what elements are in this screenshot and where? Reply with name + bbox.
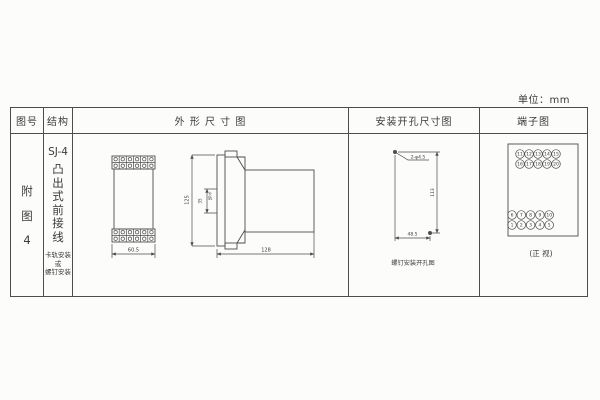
mounting-caption: 螺钉安装开孔图 (391, 259, 434, 267)
structure-type-char: 出 (52, 177, 64, 191)
terminal-number: 15 (553, 152, 559, 158)
mounting-note-line: 或 (45, 260, 71, 269)
terminal-number: 7 (520, 213, 523, 219)
structure-type-char: 接 (52, 217, 64, 231)
height-dim: 125 (185, 195, 191, 205)
rail-width-dim: 35 (198, 198, 203, 204)
terminal-number: 18 (535, 162, 541, 168)
terminal-number: 11 (517, 152, 523, 158)
figure-number: 附 图 4 (11, 134, 43, 296)
terminal-number: 16 (517, 162, 523, 168)
terminal-group-top: 11 12 13 14 15 16 17 18 19 20 (516, 150, 561, 169)
mounting-note: 卡轨安装 或 螺钉安装 (45, 251, 71, 277)
mounting-hole-bottom (428, 231, 432, 235)
model-label: SJ-4 (48, 146, 68, 158)
terminal-number: 10 (546, 213, 552, 219)
terminal-number: 20 (553, 162, 559, 168)
header-mounting: 安装开孔尺寸图 (349, 108, 480, 134)
dimension-table: 图号 结构 外 形 尺 寸 图 安装开孔尺寸图 端子图 附 图 4 SJ-4 凸… (10, 107, 588, 297)
terminal-number: 8 (529, 213, 532, 219)
hole-spec-label: 2-φ4.5 (411, 155, 426, 161)
structure-type-char: 前 (52, 204, 64, 218)
figure-char: 图 (21, 208, 33, 224)
terminal-number: 3 (529, 223, 532, 229)
structure-type-char: 凸 (52, 163, 64, 177)
terminal-number: 1 (511, 223, 514, 229)
cell-outline-drawing: 60.5 125 35 卡轨 (73, 134, 349, 296)
terminal-number: 14 (544, 152, 550, 158)
mounting-note-line: 卡轨安装 (45, 251, 71, 260)
structure-description: SJ-4 凸 出 式 前 接 线 卡轨安装 或 螺钉安装 (44, 134, 72, 296)
figure-char: 附 (21, 183, 33, 199)
terminal-number: 5 (548, 223, 551, 229)
terminal-group-bottom: 6 7 8 9 10 1 2 3 4 5 (508, 211, 554, 230)
terminal-number: 19 (544, 162, 550, 168)
cell-mounting-drawing: 2-φ4.5 113 48.5 螺钉安装开孔图 (349, 134, 480, 296)
terminal-number: 12 (526, 152, 532, 158)
depth-dim: 128 (261, 248, 271, 254)
front-view: 60.5 (112, 156, 155, 258)
structure-type-char: 线 (52, 231, 64, 245)
terminal-number: 9 (538, 213, 541, 219)
cell-figure-no: 附 图 4 (11, 134, 44, 296)
front-width-dim: 60.5 (128, 248, 139, 254)
mounting-hole-drawing: 2-φ4.5 113 48.5 螺钉安装开孔图 (349, 134, 479, 296)
header-structure: 结构 (44, 108, 73, 134)
figure-char: 4 (23, 233, 30, 247)
terminal-caption: (正 视) (529, 248, 552, 258)
vertical-dim: 113 (430, 188, 436, 197)
unit-label: 单位：mm (518, 91, 570, 106)
structure-type-char: 式 (52, 190, 64, 204)
terminal-number: 4 (538, 223, 541, 229)
terminal-diagram: 11 12 13 14 15 16 17 18 19 20 6 7 8 9 10 (480, 134, 587, 296)
side-view: 125 35 卡轨 128 (185, 151, 315, 258)
outline-drawing: 60.5 125 35 卡轨 (73, 134, 348, 296)
cell-terminal-diagram: 11 12 13 14 15 16 17 18 19 20 6 7 8 9 10 (480, 134, 587, 296)
cell-structure: SJ-4 凸 出 式 前 接 线 卡轨安装 或 螺钉安装 (44, 134, 73, 296)
horizontal-dim: 48.5 (407, 232, 417, 238)
terminal-number: 17 (526, 162, 532, 168)
rail-label: 卡轨 (208, 191, 213, 201)
header-figure-no: 图号 (11, 108, 44, 134)
terminal-number: 13 (535, 152, 541, 158)
terminal-number: 6 (511, 213, 514, 219)
header-terminal: 端子图 (480, 108, 587, 134)
terminal-number: 2 (520, 223, 523, 229)
mounting-note-line: 螺钉安装 (45, 268, 71, 277)
header-outline: 外 形 尺 寸 图 (73, 108, 349, 134)
